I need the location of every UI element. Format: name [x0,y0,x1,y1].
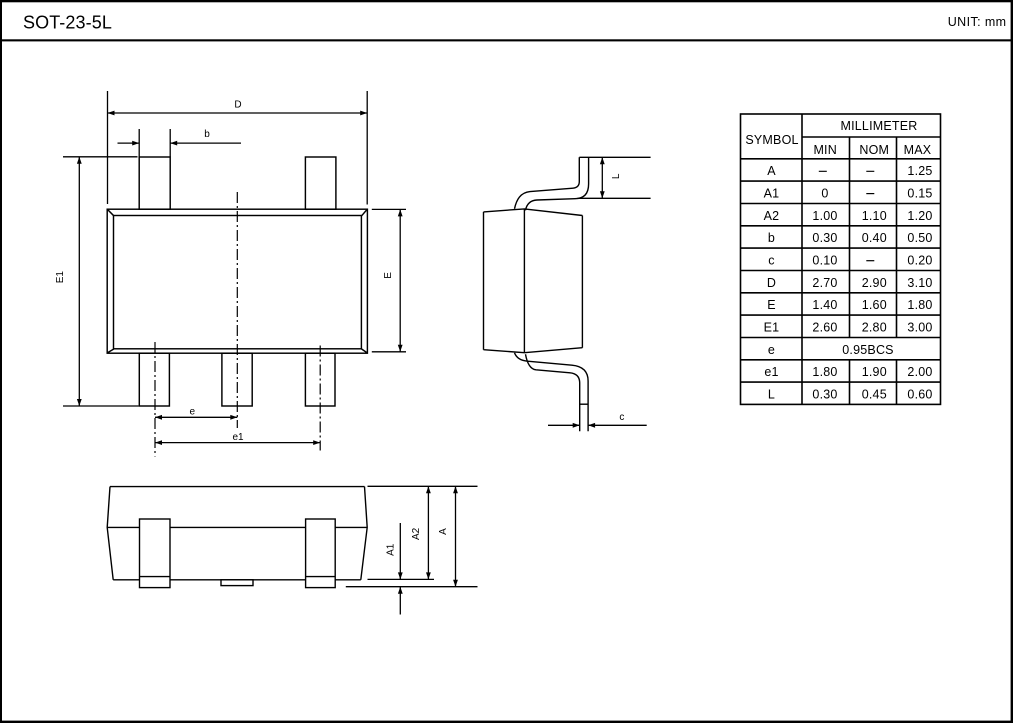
svg-text:MILLIMETER: MILLIMETER [840,119,917,133]
svg-text:e: e [768,343,775,357]
svg-text:0.15: 0.15 [907,187,932,201]
svg-text:1.60: 1.60 [862,298,887,312]
svg-text:e: e [190,406,196,417]
svg-text:0.10: 0.10 [812,254,837,268]
svg-text:1.00: 1.00 [812,209,837,223]
svg-text:0.50: 0.50 [907,231,932,245]
svg-text:c: c [768,254,774,268]
svg-text:3.10: 3.10 [907,276,932,290]
svg-text:A1: A1 [764,187,780,201]
svg-text:A: A [767,164,776,178]
svg-text:2.00: 2.00 [907,365,932,379]
svg-text:SOT-23-5L: SOT-23-5L [23,13,112,33]
svg-text:0.95BCS: 0.95BCS [842,343,893,357]
svg-text:0.60: 0.60 [907,388,932,402]
svg-text:e1: e1 [764,365,778,379]
svg-text:0.20: 0.20 [907,254,932,268]
svg-text:2.60: 2.60 [812,321,837,335]
svg-text:E1: E1 [764,321,780,335]
svg-text:D: D [767,276,776,290]
svg-text:A: A [438,528,449,535]
svg-text:A1: A1 [385,543,396,556]
svg-text:0.30: 0.30 [812,231,837,245]
svg-text:1.80: 1.80 [907,298,932,312]
svg-text:0: 0 [821,187,828,201]
svg-text:3.00: 3.00 [907,321,932,335]
svg-text:c: c [619,412,624,423]
svg-text:MAX: MAX [904,143,932,157]
svg-text:e1: e1 [232,432,244,443]
svg-text:2.80: 2.80 [862,321,887,335]
svg-text:UNIT: mm: UNIT: mm [948,15,1007,29]
svg-text:MIN: MIN [813,143,837,157]
svg-text:0.45: 0.45 [862,388,887,402]
svg-text:1.25: 1.25 [907,164,932,178]
svg-text:L: L [611,173,622,179]
svg-text:1.10: 1.10 [862,209,887,223]
svg-text:b: b [768,231,775,245]
svg-text:1.80: 1.80 [812,365,837,379]
svg-text:L: L [768,388,775,402]
svg-text:0.40: 0.40 [862,231,887,245]
svg-text:1.20: 1.20 [907,209,932,223]
svg-text:E: E [383,272,394,279]
svg-text:E1: E1 [55,271,66,284]
svg-text:1.90: 1.90 [862,365,887,379]
svg-text:2.70: 2.70 [812,276,837,290]
svg-text:D: D [234,100,241,111]
svg-text:1.40: 1.40 [812,298,837,312]
svg-text:A2: A2 [411,527,422,540]
svg-text:NOM: NOM [859,143,889,157]
svg-text:A2: A2 [764,209,780,223]
svg-text:0.30: 0.30 [812,388,837,402]
svg-text:E: E [767,298,776,312]
svg-text:2.90: 2.90 [862,276,887,290]
svg-text:b: b [204,129,210,140]
svg-text:SYMBOL: SYMBOL [745,133,798,147]
